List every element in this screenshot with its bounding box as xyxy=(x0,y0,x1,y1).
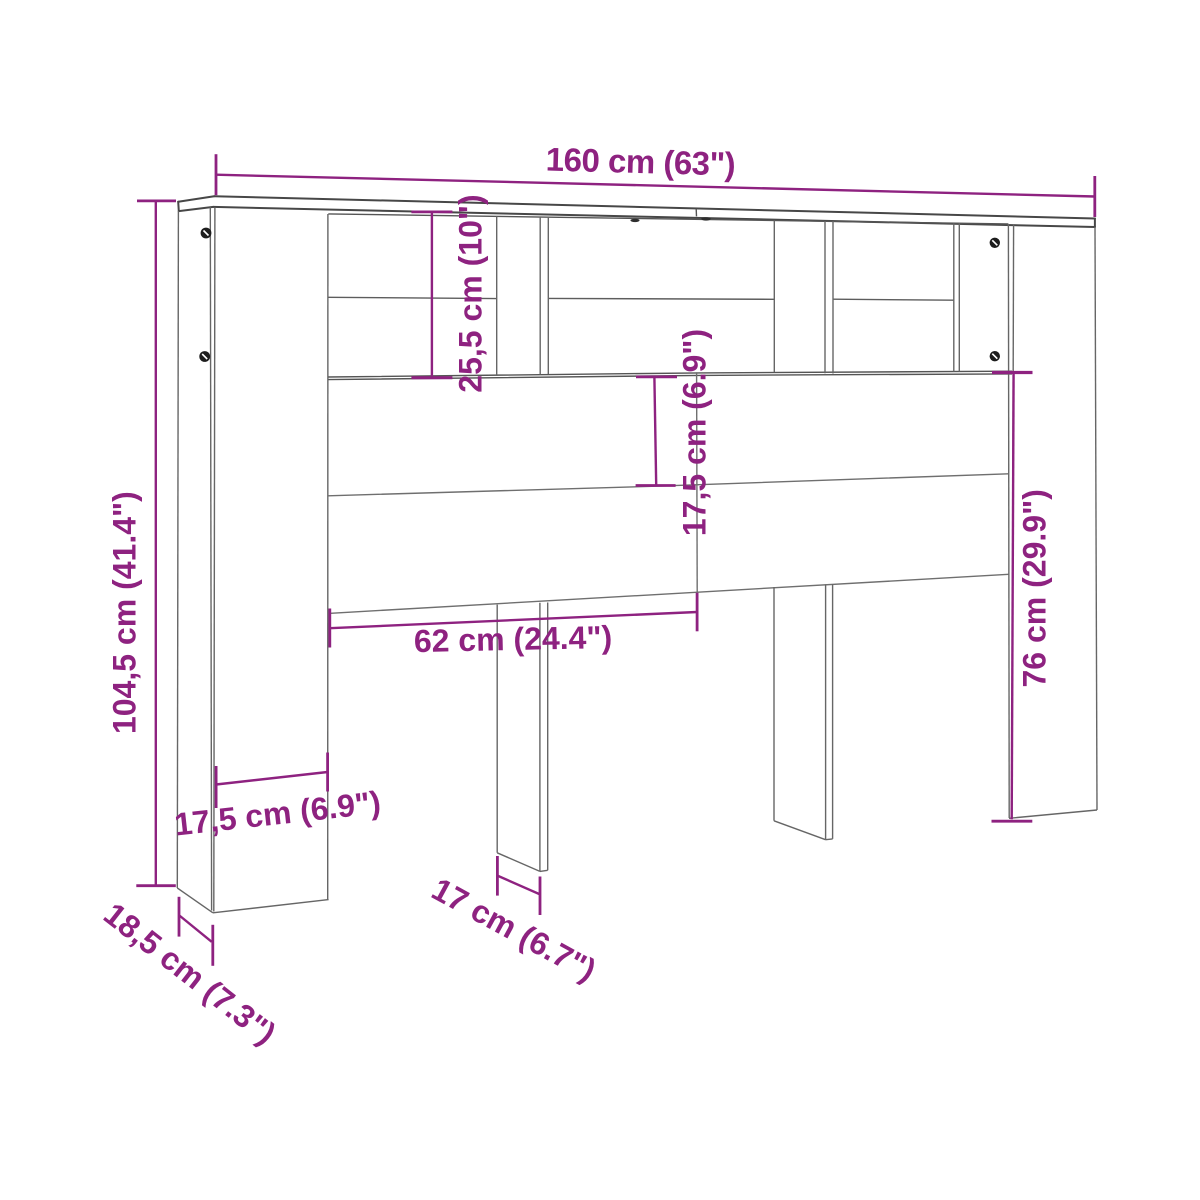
svg-text:17,5 cm (6.9"): 17,5 cm (6.9") xyxy=(677,329,713,536)
svg-text:17 cm (6.7"): 17 cm (6.7") xyxy=(426,871,602,989)
svg-text:160 cm (63"): 160 cm (63") xyxy=(545,141,735,183)
svg-text:18,5 cm (7.3"): 18,5 cm (7.3") xyxy=(97,896,283,1052)
svg-text:76 cm (29.9"): 76 cm (29.9") xyxy=(1017,489,1053,687)
svg-text:104,5 cm (41.4"): 104,5 cm (41.4") xyxy=(106,491,142,734)
svg-text:62 cm (24.4"): 62 cm (24.4") xyxy=(413,619,612,659)
svg-text:25,5 cm (10"): 25,5 cm (10") xyxy=(453,194,489,392)
svg-text:17,5 cm (6.9"): 17,5 cm (6.9") xyxy=(173,784,383,843)
